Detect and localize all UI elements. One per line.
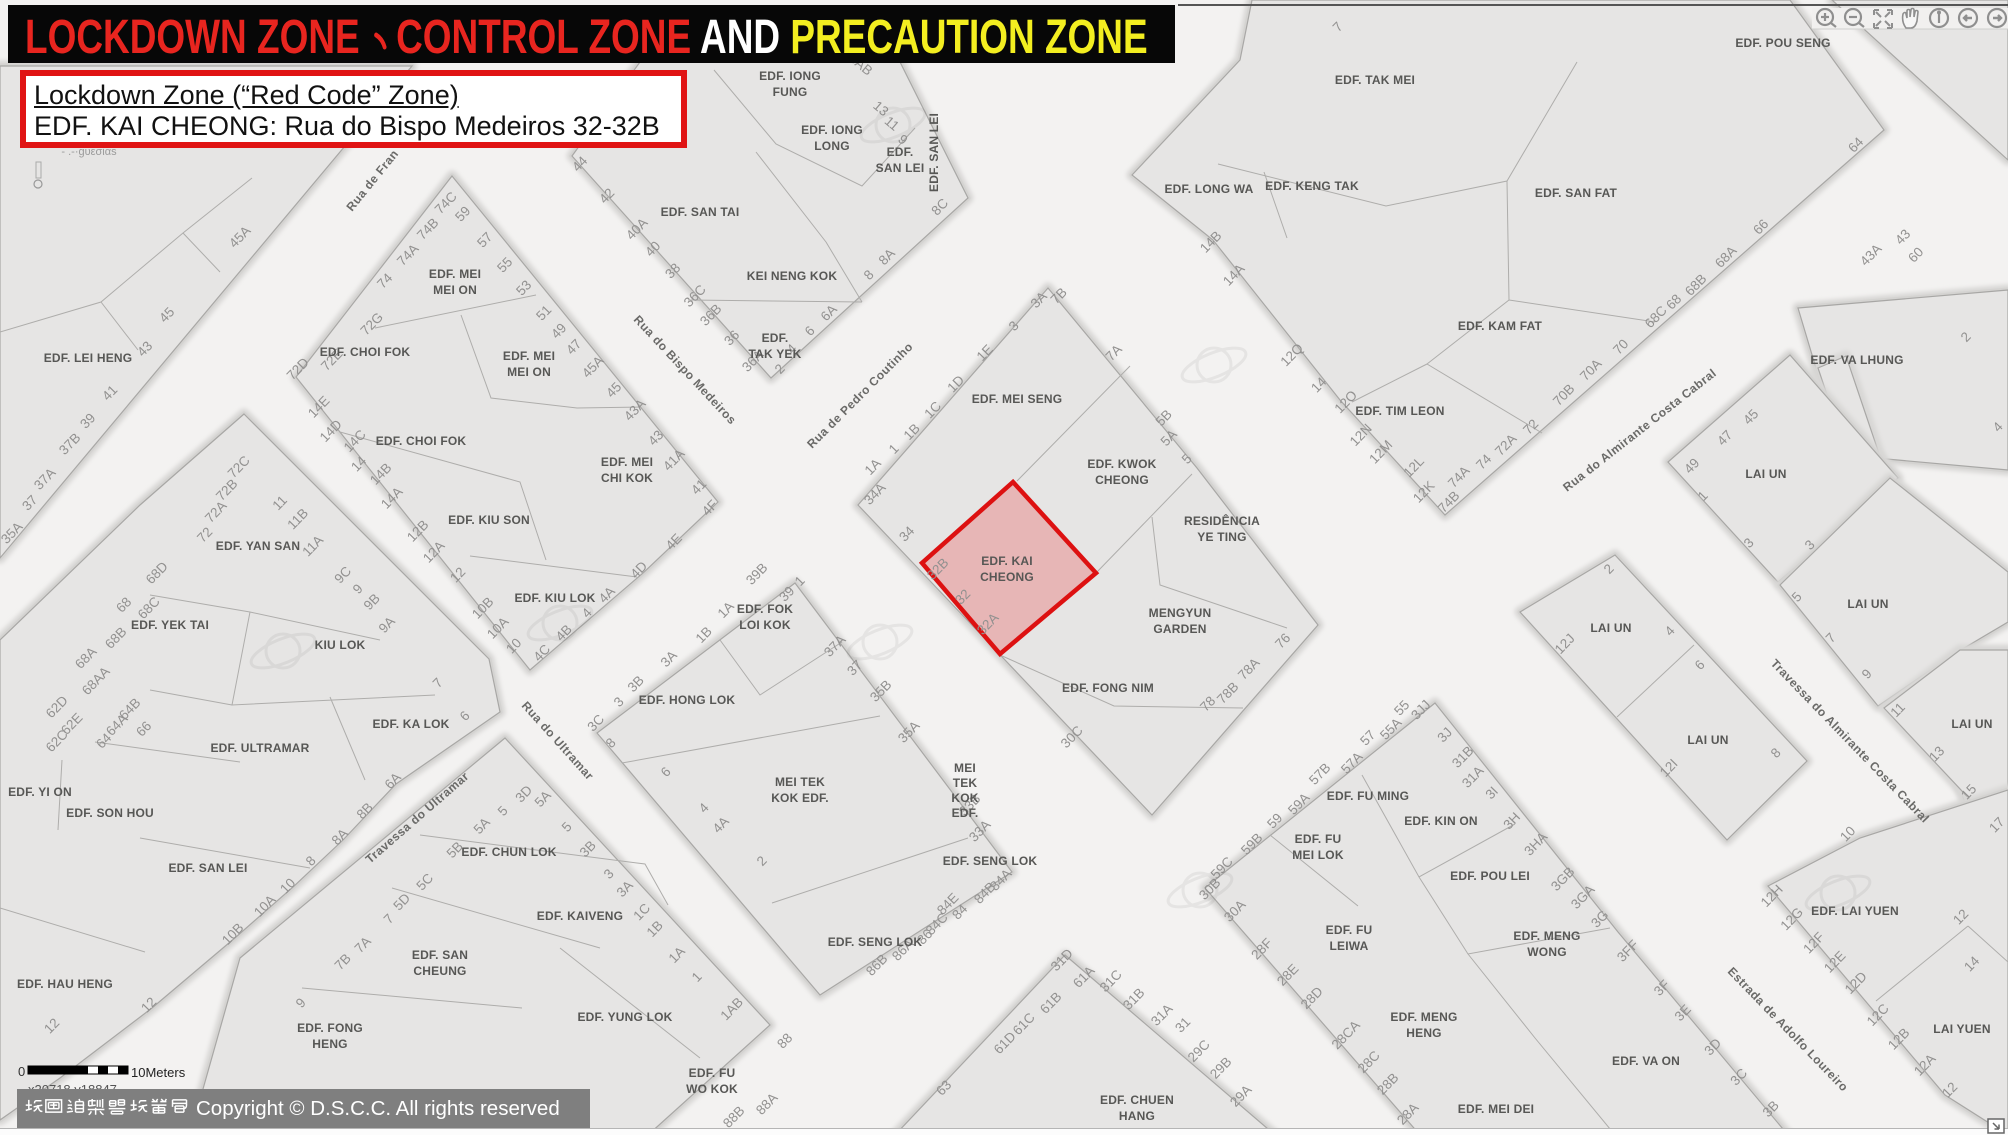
svg-text:EDF. SENG LOK: EDF. SENG LOK [828, 935, 923, 949]
svg-text:KOK EDF.: KOK EDF. [771, 791, 829, 805]
svg-text:KIU LOK: KIU LOK [315, 638, 366, 652]
svg-text:EDF. LAI YUEN: EDF. LAI YUEN [1811, 904, 1899, 918]
svg-text:EDF. SAN FAT: EDF. SAN FAT [1535, 186, 1618, 200]
svg-text:MEI: MEI [954, 761, 976, 775]
svg-text:EDF. CHUEN: EDF. CHUEN [1100, 1093, 1174, 1107]
svg-text:EDF. MEI: EDF. MEI [503, 349, 555, 363]
svg-text:EDF. LEI HENG: EDF. LEI HENG [44, 351, 133, 365]
svg-text:EDF. FOK: EDF. FOK [737, 602, 793, 616]
svg-text:EDF. FU: EDF. FU [1295, 832, 1342, 846]
svg-text:EDF. IONG: EDF. IONG [759, 69, 821, 83]
svg-text:EDF. KAI: EDF. KAI [981, 554, 1033, 568]
svg-text:EDF. YAN SAN: EDF. YAN SAN [216, 539, 300, 553]
svg-text:LAI UN: LAI UN [1951, 717, 1992, 731]
svg-text:HENG: HENG [312, 1037, 347, 1051]
svg-text:EDF. ULTRAMAR: EDF. ULTRAMAR [210, 741, 309, 755]
svg-text:EDF. KIU LOK: EDF. KIU LOK [514, 591, 595, 605]
svg-text:EDF. KAM FAT: EDF. KAM FAT [1458, 319, 1543, 333]
svg-text:10Meters: 10Meters [131, 1065, 186, 1080]
svg-text:EDF. CHOI FOK: EDF. CHOI FOK [320, 345, 411, 359]
svg-text:EDF. MEI DEI: EDF. MEI DEI [1458, 1102, 1534, 1116]
svg-text:EDF.: EDF. [762, 331, 789, 345]
svg-text:EDF. HAU HENG: EDF. HAU HENG [17, 977, 113, 991]
svg-text:EDF. YEK TAI: EDF. YEK TAI [131, 618, 209, 632]
svg-text:HANG: HANG [1119, 1109, 1155, 1123]
svg-text:EDF. FU MING: EDF. FU MING [1327, 789, 1409, 803]
svg-text:HENG: HENG [1406, 1026, 1441, 1040]
svg-text:MEI TEK: MEI TEK [775, 775, 825, 789]
svg-text:CHEONG: CHEONG [1095, 473, 1149, 487]
svg-text:YE TING: YE TING [1197, 530, 1246, 544]
svg-text:RESIDÊNCIA: RESIDÊNCIA [1184, 513, 1260, 528]
svg-text:GARDEN: GARDEN [1153, 622, 1206, 636]
svg-text:EDF. KENG TAK: EDF. KENG TAK [1265, 179, 1359, 193]
svg-text:EDF. KAIVENG: EDF. KAIVENG [537, 909, 623, 923]
svg-text:EDF. MENG: EDF. MENG [1513, 929, 1580, 943]
svg-text:LOI KOK: LOI KOK [739, 618, 791, 632]
svg-text:CHI KOK: CHI KOK [601, 471, 653, 485]
svg-text:EDF. FONG: EDF. FONG [297, 1021, 363, 1035]
svg-text:LONG: LONG [814, 139, 849, 153]
svg-text:LAI YUEN: LAI YUEN [1933, 1022, 1990, 1036]
svg-text:CHEONG: CHEONG [980, 570, 1034, 584]
svg-text:EDF. FONG NIM: EDF. FONG NIM [1062, 681, 1154, 695]
svg-text:EDF. HONG LOK: EDF. HONG LOK [639, 693, 736, 707]
svg-text:0: 0 [18, 1064, 25, 1079]
svg-text:EDF. YI ON: EDF. YI ON [8, 785, 72, 799]
svg-text:EDF. YUNG LOK: EDF. YUNG LOK [577, 1010, 672, 1024]
svg-text:LAI UN: LAI UN [1687, 733, 1728, 747]
svg-text:EDF. VA LHUNG: EDF. VA LHUNG [1810, 353, 1903, 367]
svg-text:EDF. SENG LOK: EDF. SENG LOK [943, 854, 1038, 868]
svg-text:EDF. MEI: EDF. MEI [429, 267, 481, 281]
svg-text:WO KOK: WO KOK [686, 1082, 738, 1096]
svg-text:EDF. LONG WA: EDF. LONG WA [1164, 182, 1253, 196]
svg-text:EDF. MENG: EDF. MENG [1390, 1010, 1457, 1024]
svg-text:EDF. SON HOU: EDF. SON HOU [66, 806, 154, 820]
svg-text:EDF. KA LOK: EDF. KA LOK [372, 717, 449, 731]
svg-text:MEI ON: MEI ON [507, 365, 551, 379]
svg-text:MENGYUN: MENGYUN [1149, 606, 1212, 620]
svg-text:LEIWA: LEIWA [1330, 939, 1369, 953]
svg-text:LAI UN: LAI UN [1847, 597, 1888, 611]
svg-text:EDF. CHUN LOK: EDF. CHUN LOK [461, 845, 556, 859]
svg-text:EDF. SAN: EDF. SAN [412, 948, 468, 962]
svg-text:EDF. MEI SENG: EDF. MEI SENG [972, 392, 1063, 406]
svg-text:FUNG: FUNG [773, 85, 808, 99]
svg-text:EDF. VA ON: EDF. VA ON [1612, 1054, 1680, 1068]
svg-text:EDF. SAN LEI: EDF. SAN LEI [927, 113, 941, 192]
svg-text:SAN LEI: SAN LEI [876, 161, 925, 175]
svg-text:CHEUNG: CHEUNG [413, 964, 466, 978]
svg-text:EDF. CHOI FOK: EDF. CHOI FOK [376, 434, 467, 448]
svg-text:EDF. TIM LEON: EDF. TIM LEON [1355, 404, 1444, 418]
svg-text:MEI ON: MEI ON [433, 283, 477, 297]
svg-text:TAK YEK: TAK YEK [749, 347, 802, 361]
svg-text:EDF. POU SENG: EDF. POU SENG [1735, 36, 1830, 50]
svg-text:EDF. KWOK: EDF. KWOK [1087, 457, 1156, 471]
svg-text:KOK: KOK [951, 791, 978, 805]
svg-text:EDF. FU: EDF. FU [689, 1066, 736, 1080]
svg-text:EDF. IONG: EDF. IONG [801, 123, 863, 137]
svg-text:EDF. POU LEI: EDF. POU LEI [1450, 869, 1530, 883]
svg-text:EDF. MEI: EDF. MEI [601, 455, 653, 469]
svg-text:WONG: WONG [1527, 945, 1566, 959]
svg-text:KEI NENG KOK: KEI NENG KOK [747, 269, 838, 283]
svg-text:EDF. SAN LEI: EDF. SAN LEI [168, 861, 247, 875]
svg-text:EDF. SAN TAI: EDF. SAN TAI [661, 205, 740, 219]
svg-text:EDF. FU: EDF. FU [1326, 923, 1373, 937]
svg-text:EDF.: EDF. [887, 145, 914, 159]
svg-text:EDF. KIN ON: EDF. KIN ON [1404, 814, 1478, 828]
svg-text:LAI UN: LAI UN [1590, 621, 1631, 635]
svg-text:TEK: TEK [953, 776, 978, 790]
svg-text:EDF. TAK MEI: EDF. TAK MEI [1335, 73, 1415, 87]
svg-text:EDF. KIU SON: EDF. KIU SON [448, 513, 530, 527]
svg-text:LAI UN: LAI UN [1745, 467, 1786, 481]
svg-text:EDF.: EDF. [952, 806, 979, 820]
svg-text:MEI LOK: MEI LOK [1292, 848, 1344, 862]
